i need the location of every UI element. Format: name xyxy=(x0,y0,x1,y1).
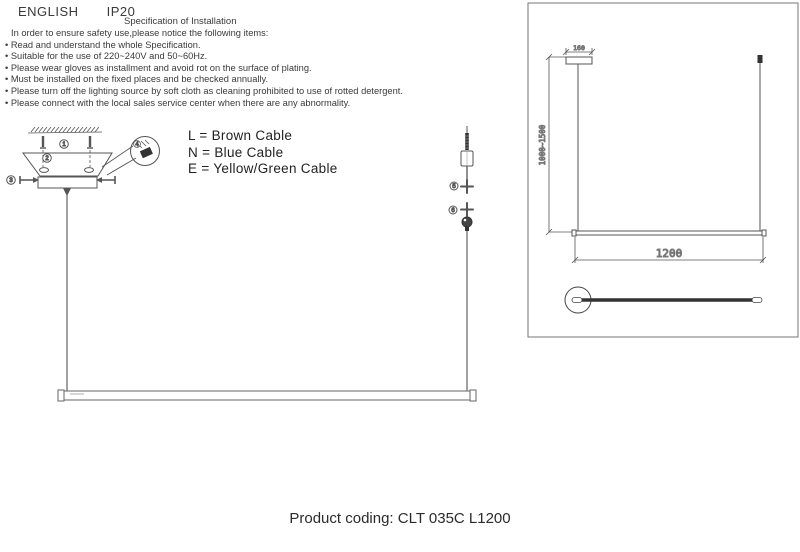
cross-fitting-lower xyxy=(461,203,473,216)
fixture-length-dim-label: 1200 xyxy=(656,247,683,260)
callout-3: 3 xyxy=(7,176,16,185)
cross-fitting-upper xyxy=(461,180,473,193)
panel-fixture-bar xyxy=(572,230,766,236)
ball-joint xyxy=(462,217,472,227)
product-coding: Product coding: CLT 035C L1200 xyxy=(0,510,800,527)
ceiling-mount-diagram: 1 2 3 4 xyxy=(7,127,160,391)
callout-4: 4 xyxy=(134,141,141,148)
callout-2: 2 xyxy=(43,154,52,163)
bar-end-cap-left xyxy=(58,390,64,401)
dimension-panel: 160 1000~1500 xyxy=(528,3,798,337)
callout-5: 5 xyxy=(450,182,458,190)
fixture-bar-side-view xyxy=(58,390,476,401)
mounting-bracket xyxy=(23,153,112,176)
bracket-hole xyxy=(85,168,94,173)
callout-1: 1 xyxy=(60,140,69,149)
bracket-hole xyxy=(40,168,49,173)
callout-6: 6 xyxy=(449,206,457,214)
cord-adjuster-diagram: 5 6 xyxy=(449,126,473,391)
strain-relief xyxy=(64,189,70,195)
canopy-body xyxy=(38,177,97,188)
canopy-width-dim-label: 160 xyxy=(573,44,585,52)
technical-drawing-canvas: 1 2 3 4 xyxy=(0,0,800,552)
panel-border xyxy=(528,3,798,337)
panel-canopy xyxy=(566,57,592,64)
panel-ceiling-anchor xyxy=(758,55,763,63)
spec-sheet-page: ENGLISHIP20 Specification of Installatio… xyxy=(0,0,800,552)
ceiling-hatch xyxy=(28,127,102,133)
panel-bottom-view xyxy=(565,287,762,313)
dim-height xyxy=(546,54,572,235)
suspension-height-dim-label: 1000~1500 xyxy=(538,124,547,165)
bar-end-cap-right xyxy=(470,390,476,401)
